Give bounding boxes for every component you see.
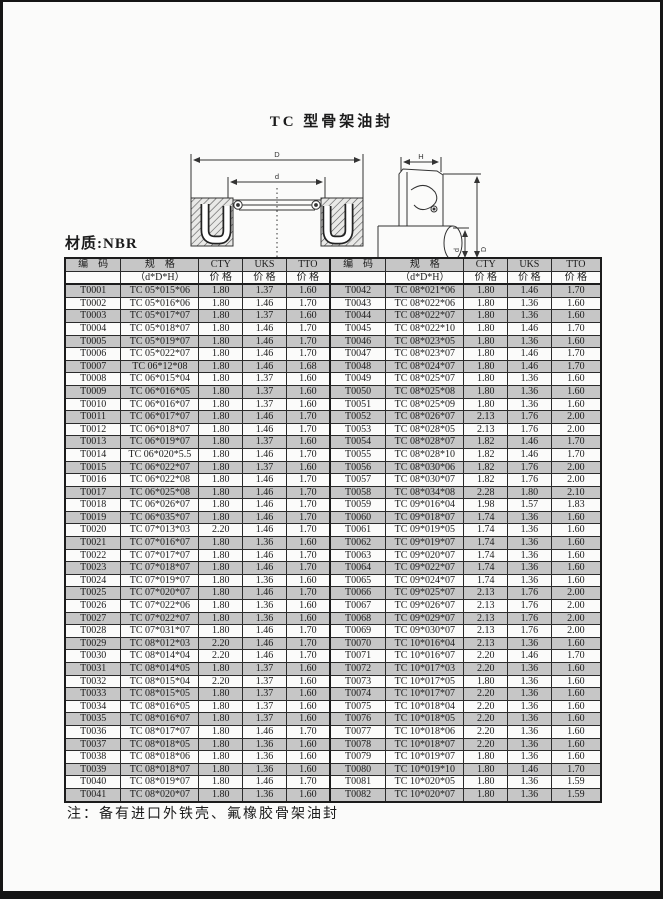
cell-code: T0049 <box>330 373 386 386</box>
cell-spec: TC 06*022*07 <box>121 461 199 474</box>
cell-spec: TC 09*019*07 <box>386 537 464 550</box>
cell-uks-price: 1.36 <box>508 310 552 323</box>
cell-cty-price: 1.74 <box>464 524 508 537</box>
table-row: T0035TC 08*016*071.801.371.60T0076TC 10*… <box>65 713 601 726</box>
cell-spec: TC 06*018*07 <box>121 423 199 436</box>
cell-cty-price: 1.80 <box>199 763 243 776</box>
cell-spec: TC 08*023*05 <box>386 335 464 348</box>
cell-tto-price: 1.70 <box>286 499 330 512</box>
cell-code: T0069 <box>330 625 386 638</box>
cell-spec: TC 10*018*07 <box>386 738 464 751</box>
cell-tto-price: 1.83 <box>551 499 601 512</box>
cell-code: T0053 <box>330 423 386 436</box>
col-header-spec: 规 格 <box>386 258 464 271</box>
cell-tto-price: 1.60 <box>286 310 330 323</box>
cell-code: T0041 <box>65 788 121 801</box>
table-row: T0031TC 08*014*051.801.371.60T0072TC 10*… <box>65 663 601 676</box>
cell-spec: TC 07*022*07 <box>121 612 199 625</box>
col-subheader-price: 价 格 <box>199 271 243 284</box>
cell-uks-price: 1.46 <box>243 524 287 537</box>
cell-cty-price: 1.80 <box>199 335 243 348</box>
cell-cty-price: 1.80 <box>199 713 243 726</box>
cell-code: T0014 <box>65 448 121 461</box>
cell-uks-price: 1.36 <box>508 385 552 398</box>
cell-cty-price: 1.80 <box>199 284 243 297</box>
col-subheader-price: 价 格 <box>551 271 601 284</box>
cell-cty-price: 1.80 <box>464 284 508 297</box>
price-table-body: T0001TC 05*015*061.801.371.60T0042TC 08*… <box>65 284 601 801</box>
cell-spec: TC 06*022*08 <box>121 474 199 487</box>
cell-cty-price: 1.80 <box>464 675 508 688</box>
cell-code: T0026 <box>65 600 121 613</box>
seal-front-view <box>191 154 363 262</box>
table-row: T0032TC 08*015*042.201.371.60T0073TC 10*… <box>65 675 601 688</box>
table-row: T0039TC 08*018*071.801.361.60T0080TC 10*… <box>65 763 601 776</box>
cell-cty-price: 1.80 <box>464 398 508 411</box>
cell-uks-price: 1.36 <box>243 574 287 587</box>
cell-spec: TC 08*021*06 <box>386 284 464 297</box>
col-subheader-price: 价 格 <box>286 271 330 284</box>
cell-tto-price: 1.60 <box>286 461 330 474</box>
cell-spec: TC 09*029*07 <box>386 612 464 625</box>
cell-uks-price: 1.36 <box>508 788 552 801</box>
cell-code: T0079 <box>330 751 386 764</box>
cell-spec: TC 08*028*10 <box>386 448 464 461</box>
cell-tto-price: 1.60 <box>551 511 601 524</box>
price-table: 编 码 规 格 CTY UKS TTO 编 码 规 格 CTY UKS TTO … <box>64 257 602 803</box>
cell-tto-price: 2.00 <box>551 423 601 436</box>
cell-cty-price: 1.80 <box>199 549 243 562</box>
table-row: T0009TC 06*016*051.801.371.60T0050TC 08*… <box>65 385 601 398</box>
cell-uks-price: 1.37 <box>243 284 287 297</box>
cell-spec: TC 08*018*06 <box>121 751 199 764</box>
table-row: T0038TC 08*018*061.801.361.60T0079TC 10*… <box>65 751 601 764</box>
table-row: T0022TC 07*017*071.801.461.70T0063TC 09*… <box>65 549 601 562</box>
table-row: T0012TC 06*018*071.801.461.70T0053TC 08*… <box>65 423 601 436</box>
cell-uks-price: 1.36 <box>243 600 287 613</box>
cell-spec: TC 08*017*07 <box>121 725 199 738</box>
cell-cty-price: 2.20 <box>464 713 508 726</box>
cell-uks-price: 1.46 <box>508 650 552 663</box>
cell-tto-price: 1.60 <box>286 700 330 713</box>
cell-cty-price: 1.80 <box>464 348 508 361</box>
cell-code: T0018 <box>65 499 121 512</box>
cell-uks-price: 1.36 <box>508 549 552 562</box>
cell-spec: TC 06*025*08 <box>121 486 199 499</box>
cell-spec: TC 09*026*07 <box>386 600 464 613</box>
cell-spec: TC 08*018*07 <box>121 763 199 776</box>
cell-uks-price: 1.37 <box>243 700 287 713</box>
cell-spec: TC 09*024*07 <box>386 574 464 587</box>
cell-tto-price: 1.70 <box>286 725 330 738</box>
col-header-spec: 规 格 <box>121 258 199 271</box>
cell-spec: TC 05*016*06 <box>121 297 199 310</box>
cell-tto-price: 1.60 <box>286 436 330 449</box>
cell-spec: TC 10*019*07 <box>386 751 464 764</box>
cell-tto-price: 1.60 <box>551 663 601 676</box>
cell-tto-price: 1.60 <box>286 713 330 726</box>
cell-uks-price: 1.46 <box>508 284 552 297</box>
cell-code: T0016 <box>65 474 121 487</box>
cell-uks-price: 1.36 <box>508 574 552 587</box>
cell-cty-price: 1.80 <box>199 423 243 436</box>
cell-code: T0059 <box>330 499 386 512</box>
cell-tto-price: 2.00 <box>551 625 601 638</box>
cell-code: T0007 <box>65 360 121 373</box>
table-row: T0029TC 08*012*032.201.461.70T0070TC 10*… <box>65 637 601 650</box>
cell-cty-price: 1.80 <box>199 348 243 361</box>
cell-cty-price: 2.20 <box>464 738 508 751</box>
cell-uks-price: 1.36 <box>508 297 552 310</box>
cell-cty-price: 1.80 <box>464 788 508 801</box>
col-header-code: 编 码 <box>65 258 121 271</box>
cell-tto-price: 1.60 <box>551 700 601 713</box>
cell-spec: TC 05*018*07 <box>121 322 199 335</box>
cell-code: T0028 <box>65 625 121 638</box>
cell-code: T0029 <box>65 637 121 650</box>
cell-uks-price: 1.36 <box>508 776 552 789</box>
cell-uks-price: 1.37 <box>243 461 287 474</box>
cell-code: T0075 <box>330 700 386 713</box>
cell-spec: TC 10*017*07 <box>386 688 464 701</box>
cell-tto-price: 1.60 <box>551 335 601 348</box>
cell-code: T0003 <box>65 310 121 323</box>
cell-tto-price: 1.60 <box>551 398 601 411</box>
cell-uks-price: 1.46 <box>243 562 287 575</box>
cell-tto-price: 1.70 <box>286 524 330 537</box>
cell-code: T0070 <box>330 637 386 650</box>
cell-code: T0081 <box>330 776 386 789</box>
cell-tto-price: 1.60 <box>286 751 330 764</box>
cell-tto-price: 1.70 <box>286 348 330 361</box>
cell-code: T0008 <box>65 373 121 386</box>
cell-spec: TC 10*020*07 <box>386 788 464 801</box>
cell-uks-price: 1.36 <box>508 373 552 386</box>
cell-tto-price: 1.70 <box>286 423 330 436</box>
cell-code: T0068 <box>330 612 386 625</box>
cell-uks-price: 1.36 <box>508 335 552 348</box>
cell-tto-price: 1.60 <box>286 385 330 398</box>
cell-code: T0040 <box>65 776 121 789</box>
col-header-tto: TTO <box>551 258 601 271</box>
cell-code: T0038 <box>65 751 121 764</box>
cell-code: T0052 <box>330 411 386 424</box>
cell-spec: TC 09*030*07 <box>386 625 464 638</box>
table-row: T0034TC 08*016*051.801.371.60T0075TC 10*… <box>65 700 601 713</box>
cell-spec: TC 09*025*07 <box>386 587 464 600</box>
cell-tto-price: 1.70 <box>551 322 601 335</box>
cell-spec: TC 07*017*07 <box>121 549 199 562</box>
cell-tto-price: 1.70 <box>286 335 330 348</box>
cell-code: T0036 <box>65 725 121 738</box>
cell-uks-price: 1.36 <box>508 511 552 524</box>
cell-uks-price: 1.76 <box>508 474 552 487</box>
cell-tto-price: 1.59 <box>551 776 601 789</box>
cell-cty-price: 1.82 <box>464 474 508 487</box>
col-header-cty: CTY <box>464 258 508 271</box>
cell-tto-price: 1.60 <box>551 310 601 323</box>
cell-spec: TC 10*020*05 <box>386 776 464 789</box>
cell-spec: TC 09*019*05 <box>386 524 464 537</box>
col-subheader-price: 价 格 <box>464 271 508 284</box>
cell-spec: TC 08*024*07 <box>386 360 464 373</box>
cell-tto-price: 1.70 <box>286 474 330 487</box>
cell-uks-price: 1.36 <box>508 751 552 764</box>
cell-cty-price: 1.82 <box>464 436 508 449</box>
catalog-page: TC 型骨架油封 <box>0 0 663 899</box>
table-row: T0003TC 05*017*071.801.371.60T0044TC 08*… <box>65 310 601 323</box>
table-row: T0023TC 07*018*071.801.461.70T0064TC 09*… <box>65 562 601 575</box>
cell-tto-price: 1.60 <box>286 284 330 297</box>
cell-spec: TC 05*019*07 <box>121 335 199 348</box>
col-subheader-price: 价 格 <box>508 271 552 284</box>
cell-uks-price: 1.46 <box>508 360 552 373</box>
cell-tto-price: 1.60 <box>551 373 601 386</box>
cell-uks-price: 1.37 <box>243 663 287 676</box>
cell-code: T0042 <box>330 284 386 297</box>
cell-tto-price: 1.60 <box>286 688 330 701</box>
cell-uks-price: 1.76 <box>508 423 552 436</box>
table-row: T0021TC 07*016*071.801.361.60T0062TC 09*… <box>65 537 601 550</box>
cell-uks-price: 1.36 <box>508 562 552 575</box>
cell-cty-price: 1.80 <box>464 360 508 373</box>
cell-code: T0056 <box>330 461 386 474</box>
cell-spec: TC 06*026*07 <box>121 499 199 512</box>
cell-code: T0066 <box>330 587 386 600</box>
cell-uks-price: 1.46 <box>508 436 552 449</box>
cell-uks-price: 1.76 <box>508 461 552 474</box>
cell-spec: TC 07*022*06 <box>121 600 199 613</box>
cell-tto-price: 1.70 <box>286 322 330 335</box>
cell-cty-price: 1.80 <box>464 763 508 776</box>
cell-uks-price: 1.37 <box>243 398 287 411</box>
cell-tto-price: 1.60 <box>286 612 330 625</box>
cell-uks-price: 1.46 <box>243 360 287 373</box>
table-row: T0002TC 05*016*061.801.461.70T0043TC 08*… <box>65 297 601 310</box>
cell-tto-price: 1.70 <box>551 448 601 461</box>
cell-tto-price: 1.60 <box>551 524 601 537</box>
table-row: T0030TC 08*014*042.201.461.70T0071TC 10*… <box>65 650 601 663</box>
cell-cty-price: 2.20 <box>464 725 508 738</box>
cell-uks-price: 1.37 <box>243 373 287 386</box>
cell-cty-price: 1.80 <box>464 297 508 310</box>
cell-uks-price: 1.46 <box>508 348 552 361</box>
table-row: T0024TC 07*019*071.801.361.60T0065TC 09*… <box>65 574 601 587</box>
cell-uks-price: 1.36 <box>508 688 552 701</box>
table-row: T0018TC 06*026*071.801.461.70T0059TC 09*… <box>65 499 601 512</box>
cell-code: T0058 <box>330 486 386 499</box>
cell-tto-price: 1.60 <box>551 574 601 587</box>
cell-cty-price: 1.80 <box>464 385 508 398</box>
table-row: T0028TC 07*031*071.801.461.70T0069TC 09*… <box>65 625 601 638</box>
cell-spec: TC 06*12*08 <box>121 360 199 373</box>
table-row: T0015TC 06*022*071.801.371.60T0056TC 08*… <box>65 461 601 474</box>
cell-code: T0057 <box>330 474 386 487</box>
cell-tto-price: 1.70 <box>286 776 330 789</box>
cell-cty-price: 1.80 <box>199 461 243 474</box>
cell-uks-price: 1.36 <box>508 663 552 676</box>
col-header-uks: UKS <box>508 258 552 271</box>
cell-uks-price: 1.46 <box>243 411 287 424</box>
cell-spec: TC 08*012*03 <box>121 637 199 650</box>
cell-spec: TC 05*017*07 <box>121 310 199 323</box>
cell-uks-price: 1.37 <box>243 436 287 449</box>
cell-code: T0082 <box>330 788 386 801</box>
cell-cty-price: 1.80 <box>464 322 508 335</box>
cell-tto-price: 2.00 <box>551 411 601 424</box>
cell-spec: TC 08*014*04 <box>121 650 199 663</box>
cell-uks-price: 1.36 <box>508 725 552 738</box>
cell-tto-price: 1.60 <box>286 738 330 751</box>
cell-uks-price: 1.76 <box>508 612 552 625</box>
cell-uks-price: 1.36 <box>508 398 552 411</box>
cell-spec: TC 05*022*07 <box>121 348 199 361</box>
cell-tto-price: 1.70 <box>551 360 601 373</box>
cell-spec: TC 08*020*07 <box>121 788 199 801</box>
table-row: T0017TC 06*025*081.801.461.70T0058TC 08*… <box>65 486 601 499</box>
cell-uks-price: 1.36 <box>508 637 552 650</box>
cell-code: T0047 <box>330 348 386 361</box>
cell-cty-price: 1.80 <box>199 486 243 499</box>
seal-technical-drawing: D d H d D <box>153 148 523 274</box>
cell-cty-price: 1.80 <box>199 398 243 411</box>
cell-spec: TC 09*022*07 <box>386 562 464 575</box>
table-row: T0001TC 05*015*061.801.371.60T0042TC 08*… <box>65 284 601 297</box>
cell-code: T0030 <box>65 650 121 663</box>
cell-uks-price: 1.46 <box>243 348 287 361</box>
table-row: T0027TC 07*022*071.801.361.60T0068TC 09*… <box>65 612 601 625</box>
cell-tto-price: 1.70 <box>286 511 330 524</box>
cell-code: T0045 <box>330 322 386 335</box>
cell-tto-price: 1.60 <box>551 725 601 738</box>
cell-spec: TC 10*017*03 <box>386 663 464 676</box>
cell-cty-price: 2.20 <box>199 675 243 688</box>
cell-cty-price: 1.80 <box>199 436 243 449</box>
cell-code: T0046 <box>330 335 386 348</box>
header-row-2: （d*D*H） 价 格 价 格 价 格 （d*D*H） 价 格 价 格 价 格 <box>65 271 601 284</box>
cell-uks-price: 1.36 <box>243 537 287 550</box>
cell-tto-price: 1.60 <box>286 788 330 801</box>
cell-spec: TC 08*028*05 <box>386 423 464 436</box>
cell-tto-price: 1.70 <box>286 549 330 562</box>
cell-uks-price: 1.46 <box>243 650 287 663</box>
cell-code: T0012 <box>65 423 121 436</box>
cell-uks-price: 1.36 <box>243 612 287 625</box>
cell-spec: TC 07*013*03 <box>121 524 199 537</box>
cell-spec: TC 07*019*07 <box>121 574 199 587</box>
cell-uks-price: 1.36 <box>508 700 552 713</box>
cell-uks-price: 1.36 <box>508 713 552 726</box>
cell-cty-price: 1.80 <box>464 751 508 764</box>
cell-spec: TC 08*026*07 <box>386 411 464 424</box>
cell-cty-price: 1.80 <box>199 537 243 550</box>
table-row: T0013TC 06*019*071.801.371.60T0054TC 08*… <box>65 436 601 449</box>
cell-cty-price: 1.80 <box>199 385 243 398</box>
table-row: T0010TC 06*016*071.801.371.60T0051TC 08*… <box>65 398 601 411</box>
dim-label-d-front: d <box>275 172 279 181</box>
cell-code: T0064 <box>330 562 386 575</box>
cell-code: T0017 <box>65 486 121 499</box>
cell-spec: TC 08*022*10 <box>386 322 464 335</box>
cell-uks-price: 1.46 <box>243 423 287 436</box>
cell-cty-price: 1.80 <box>199 700 243 713</box>
cell-tto-price: 1.70 <box>551 763 601 776</box>
cell-spec: TC 06*017*07 <box>121 411 199 424</box>
cell-uks-price: 1.46 <box>243 625 287 638</box>
cell-tto-price: 1.70 <box>286 297 330 310</box>
cell-tto-price: 1.70 <box>286 637 330 650</box>
cell-spec: TC 10*018*05 <box>386 713 464 726</box>
table-row: T0041TC 08*020*071.801.361.60T0082TC 10*… <box>65 788 601 801</box>
cell-spec: TC 10*018*06 <box>386 725 464 738</box>
cell-spec: TC 09*020*07 <box>386 549 464 562</box>
cell-spec: TC 06*015*04 <box>121 373 199 386</box>
cell-cty-price: 2.13 <box>464 600 508 613</box>
cell-uks-price: 1.36 <box>508 675 552 688</box>
cell-cty-price: 1.80 <box>199 788 243 801</box>
cell-code: T0022 <box>65 549 121 562</box>
dim-label-d-side: d <box>454 248 461 252</box>
cell-uks-price: 1.46 <box>243 322 287 335</box>
table-row: T0025TC 07*020*071.801.461.70T0066TC 09*… <box>65 587 601 600</box>
cell-code: T0002 <box>65 297 121 310</box>
col-subheader-blank <box>65 271 121 284</box>
cell-spec: TC 08*022*07 <box>386 310 464 323</box>
cell-spec: TC 06*016*05 <box>121 385 199 398</box>
cell-code: T0073 <box>330 675 386 688</box>
cell-uks-price: 1.37 <box>243 385 287 398</box>
cell-code: T0019 <box>65 511 121 524</box>
cell-code: T0063 <box>330 549 386 562</box>
cell-cty-price: 2.20 <box>199 650 243 663</box>
col-subheader-price: 价 格 <box>243 271 287 284</box>
cell-spec: TC 07*020*07 <box>121 587 199 600</box>
cell-cty-price: 1.82 <box>464 448 508 461</box>
cell-uks-price: 1.46 <box>243 511 287 524</box>
cell-code: T0076 <box>330 713 386 726</box>
cell-cty-price: 1.80 <box>199 373 243 386</box>
table-row: T0040TC 08*019*071.801.461.70T0081TC 10*… <box>65 776 601 789</box>
cell-uks-price: 1.46 <box>243 637 287 650</box>
cell-code: T0027 <box>65 612 121 625</box>
cell-spec: TC 05*015*06 <box>121 284 199 297</box>
cell-code: T0071 <box>330 650 386 663</box>
cell-code: T0006 <box>65 348 121 361</box>
cell-spec: TC 08*030*07 <box>386 474 464 487</box>
page-title: TC 型骨架油封 <box>3 110 660 131</box>
cell-tto-price: 1.70 <box>286 650 330 663</box>
cell-cty-price: 1.80 <box>199 688 243 701</box>
table-row: T0019TC 06*035*071.801.461.70T0060TC 09*… <box>65 511 601 524</box>
cell-spec: TC 06*016*07 <box>121 398 199 411</box>
cell-cty-price: 1.80 <box>464 310 508 323</box>
cell-cty-price: 1.80 <box>199 322 243 335</box>
cell-spec: TC 08*018*05 <box>121 738 199 751</box>
table-row: T0026TC 07*022*061.801.361.60T0067TC 09*… <box>65 600 601 613</box>
cell-code: T0025 <box>65 587 121 600</box>
table-row: T0006TC 05*022*071.801.461.70T0047TC 08*… <box>65 348 601 361</box>
cell-code: T0061 <box>330 524 386 537</box>
cell-cty-price: 1.74 <box>464 549 508 562</box>
cell-code: T0055 <box>330 448 386 461</box>
cell-code: T0043 <box>330 297 386 310</box>
cell-uks-price: 1.76 <box>508 600 552 613</box>
cell-uks-price: 1.46 <box>243 486 287 499</box>
cell-code: T0009 <box>65 385 121 398</box>
cell-code: T0032 <box>65 675 121 688</box>
cell-tto-price: 2.10 <box>551 486 601 499</box>
cell-cty-price: 2.20 <box>464 650 508 663</box>
